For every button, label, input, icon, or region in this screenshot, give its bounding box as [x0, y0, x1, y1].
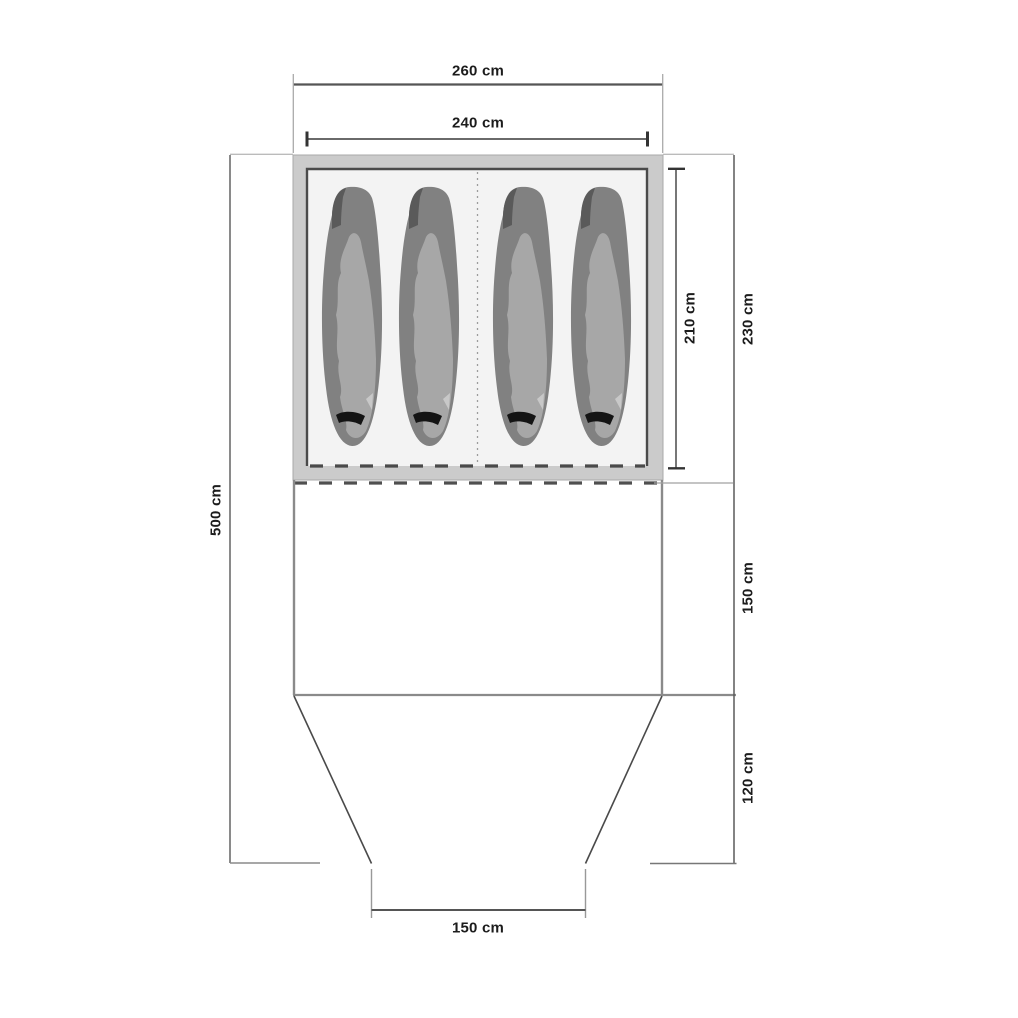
sleeping-bag-2 — [399, 187, 459, 446]
sleeping-bag-1 — [322, 187, 382, 446]
label-total-depth: 500 cm — [208, 484, 225, 536]
porch-right-slope — [586, 696, 663, 864]
label-outer-width: 260 cm — [452, 63, 504, 80]
label-sleeping-depth: 230 cm — [740, 293, 757, 345]
label-inner-width: 240 cm — [452, 115, 504, 132]
label-living-depth: 150 cm — [740, 562, 757, 614]
sleeping-bag-3 — [493, 187, 553, 446]
sleeping-bag-4 — [571, 187, 631, 446]
label-porch-depth: 120 cm — [740, 752, 757, 804]
tent-floorplan-diagram: 260 cm 240 cm 210 cm 230 cm 500 cm 150 c… — [0, 0, 1018, 1018]
floorplan-drawing — [0, 0, 1018, 1018]
label-inner-depth: 210 cm — [682, 292, 699, 344]
porch-left-slope — [294, 696, 372, 864]
label-entrance-width: 150 cm — [452, 920, 504, 937]
